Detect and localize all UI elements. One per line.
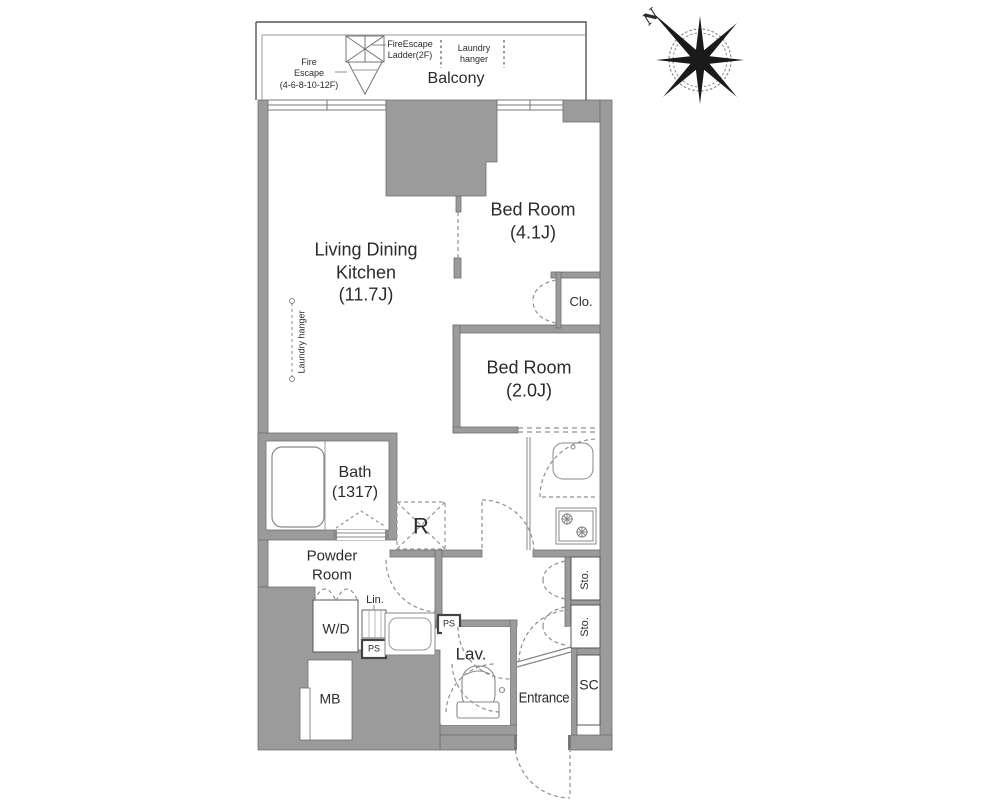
floor-plan: Balcony Fire Escape (4-6-8-10-12F) FireE…	[0, 0, 999, 801]
closet-bifold-door	[533, 280, 556, 323]
storage-label: Sto.	[579, 570, 593, 590]
sliding-door-bedroom2	[518, 428, 598, 432]
balcony-label: Balcony	[428, 69, 485, 89]
entrance-door-jamb	[568, 735, 571, 750]
closet-label: Clo.	[569, 294, 592, 310]
kitchen	[527, 437, 596, 550]
pipe-space-label: PS	[368, 643, 380, 654]
pipe-space-label: PS	[443, 618, 455, 629]
hall-door-swing	[482, 500, 534, 551]
compass-icon	[653, 13, 744, 104]
entrance-door-swing	[515, 743, 570, 798]
fire-escape-label: Fire Escape (4-6-8-10-12F)	[280, 57, 339, 91]
burner-icon	[561, 513, 588, 538]
wall-bottom-right	[570, 735, 612, 750]
kitchen-door-swing	[540, 439, 598, 497]
bathtub-icon	[272, 447, 324, 527]
balcony-laundry-hanger-label: Laundry hanger	[458, 43, 491, 66]
bedroom1-label: Bed Room (4.1J)	[490, 199, 575, 244]
bath-label: Bath (1317)	[332, 463, 378, 503]
vanity-sink-icon	[389, 618, 431, 650]
entrance-label: Entrance	[519, 690, 570, 709]
shoe-closet-label: SC	[579, 676, 598, 694]
indoor-laundry-hanger-icon	[290, 299, 295, 382]
fire-escape-hatch-icon	[335, 36, 386, 94]
powder-door-swing	[386, 560, 438, 612]
lavatory-room	[442, 627, 510, 725]
wall-top-right-corner	[563, 100, 600, 122]
refrigerator-label: R	[413, 512, 429, 540]
washer-cabinet-doors	[314, 589, 358, 601]
linen-label: Lin.	[366, 594, 384, 608]
lavatory-label: Lav.	[456, 643, 487, 664]
indoor-laundry-hanger-label: Laundry hanger	[296, 310, 307, 373]
living-room-label: Living Dining Kitchen (11.7J)	[314, 238, 417, 306]
storage-label: Sto.	[579, 617, 593, 637]
bedroom2-label: Bed Room (2.0J)	[486, 357, 571, 402]
wall-right	[600, 100, 612, 750]
storage-bifold-door	[543, 561, 565, 599]
stove-icon	[556, 508, 596, 544]
service-shaft	[386, 100, 497, 196]
entrance-door-jamb	[514, 735, 517, 750]
kitchen-sink-icon	[553, 443, 593, 479]
wall-bottom-left	[440, 735, 516, 750]
powder-room-label: Powder Room	[307, 547, 358, 585]
washer-dryer-label: W/D	[322, 620, 349, 638]
linen-cabinet	[362, 610, 386, 638]
meter-box-label: MB	[320, 690, 341, 708]
meter-box-step	[300, 688, 310, 740]
fire-escape-ladder-label: FireEscape Ladder(2F)	[387, 39, 433, 62]
